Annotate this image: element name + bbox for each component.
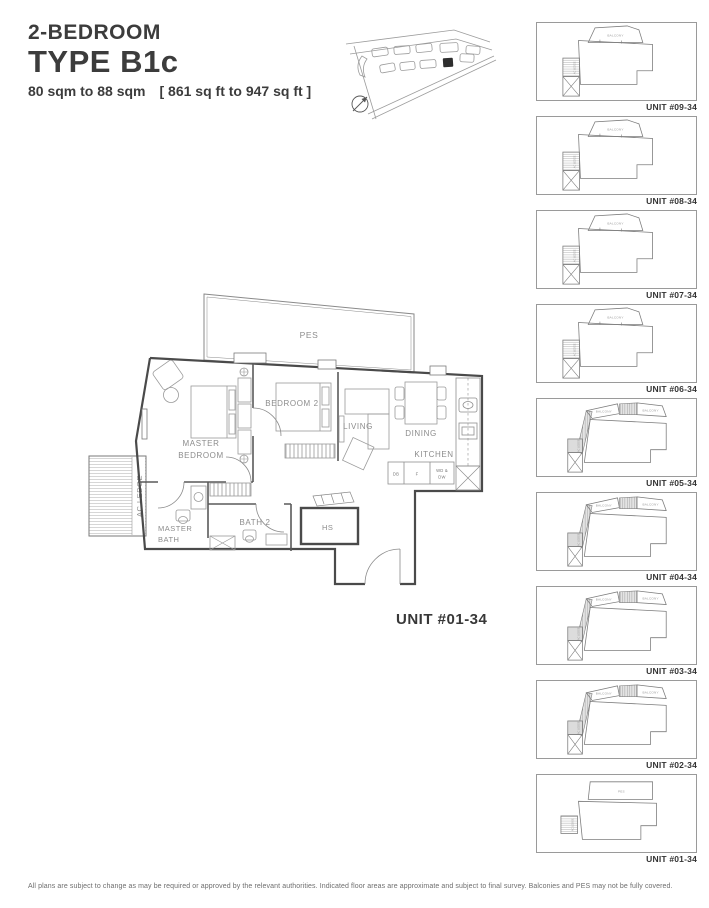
living-label: LIVING	[343, 422, 373, 431]
unit-thumbnail-shape	[568, 497, 666, 566]
unit-thumbnail	[536, 116, 697, 195]
unit-cell: UNIT #01-34	[536, 774, 697, 868]
unit-thumbnail	[536, 680, 697, 759]
hs-label: HS	[322, 523, 333, 532]
north-compass-icon	[352, 96, 368, 112]
disclaimer-text: All plans are subject to change as may b…	[28, 883, 694, 890]
page-title: TYPE B1c	[28, 44, 311, 80]
unit-stack-label: UNIT #01-34	[536, 853, 697, 867]
unit-stack-label: UNIT #05-34	[536, 477, 697, 491]
unit-thumbnail	[536, 492, 697, 571]
bedroom2-furniture	[276, 383, 335, 458]
unit-stack-label: UNIT #03-34	[536, 665, 697, 679]
db-label: DB	[393, 472, 399, 477]
main-unit-number: UNIT #01-34	[396, 611, 487, 628]
master-bedroom-furniture	[152, 359, 251, 496]
unit-stack-label: UNIT #08-34	[536, 195, 697, 209]
unit-cell: UNIT #05-34	[536, 398, 697, 492]
master-bath-label-1: MASTER	[158, 524, 192, 533]
unit-thumbnail-shape	[568, 591, 666, 660]
master-bedroom-label-2: BEDROOM	[178, 451, 224, 460]
page-subtitle: 2-BEDROOM	[28, 22, 311, 44]
unit-stack-label: UNIT #09-34	[536, 101, 697, 115]
unit-thumbnail-shape	[563, 26, 653, 96]
unit-cell: UNIT #08-34	[536, 116, 697, 210]
area-line: 80 sqm to 88 sqm[ 861 sq ft to 947 sq ft…	[28, 83, 311, 99]
unit-thumbnail-shape	[563, 214, 653, 284]
unit-thumbnail-shape	[568, 403, 666, 472]
unit-thumbnail-shape	[563, 120, 653, 190]
unit-stack-label: UNIT #04-34	[536, 571, 697, 585]
unit-thumbnail	[536, 22, 697, 101]
floorplan-page: BALCONY AC LEDGE BALCONY BALCONY AC LEDG	[0, 0, 709, 908]
area-sqm: 80 sqm to 88 sqm	[28, 83, 146, 99]
key-plan-map	[342, 16, 522, 124]
kitchen-label: KITCHEN	[414, 450, 453, 459]
unit-thumbnail	[536, 586, 697, 665]
wd-dw-label-1: WD &	[436, 468, 448, 473]
bedroom2-label: BEDROOM 2	[265, 399, 318, 408]
unit-cell: UNIT #06-34	[536, 304, 697, 398]
unit-cell: UNIT #09-34	[536, 22, 697, 116]
header: 2-BEDROOM TYPE B1c 80 sqm to 88 sqm[ 861…	[28, 22, 311, 99]
unit-stack-label: UNIT #02-34	[536, 759, 697, 773]
master-bath-label-2: BATH	[158, 535, 179, 544]
unit-cell: UNIT #02-34	[536, 680, 697, 774]
entry-door	[365, 549, 400, 584]
master-bedroom-label-1: MASTER	[183, 439, 220, 448]
main-floor-plan: AC LEDGE	[88, 286, 502, 634]
interior-doors	[158, 408, 284, 532]
fridge-label: F	[416, 472, 419, 477]
unit-cell: UNIT #04-34	[536, 492, 697, 586]
unit-stack-label: UNIT #07-34	[536, 289, 697, 303]
unit-thumbnail-shape	[563, 308, 653, 378]
household-shelter: HS	[301, 492, 358, 544]
subject-building-marker	[443, 58, 454, 68]
unit-thumbnail	[536, 398, 697, 477]
bath2-label: BATH 2	[239, 518, 270, 527]
pes-label: PES	[300, 330, 319, 340]
wd-dw-label-2: DW	[438, 475, 445, 480]
unit-thumbnail	[536, 210, 697, 289]
unit-thumbnail	[536, 304, 697, 383]
unit-stack-label: UNIT #06-34	[536, 383, 697, 397]
unit-cell: UNIT #03-34	[536, 586, 697, 680]
area-sqft: [ 861 sq ft to 947 sq ft ]	[160, 83, 312, 99]
unit-stack: UNIT #09-34 UNIT #08-34 UNIT #07-34 UNIT…	[536, 22, 697, 868]
dining-label: DINING	[405, 429, 437, 438]
unit-cell: UNIT #07-34	[536, 210, 697, 304]
unit-thumbnail	[536, 774, 697, 853]
dining-set	[395, 382, 446, 424]
unit-thumbnail-shape	[561, 782, 657, 840]
unit-thumbnail-shape	[568, 685, 666, 754]
